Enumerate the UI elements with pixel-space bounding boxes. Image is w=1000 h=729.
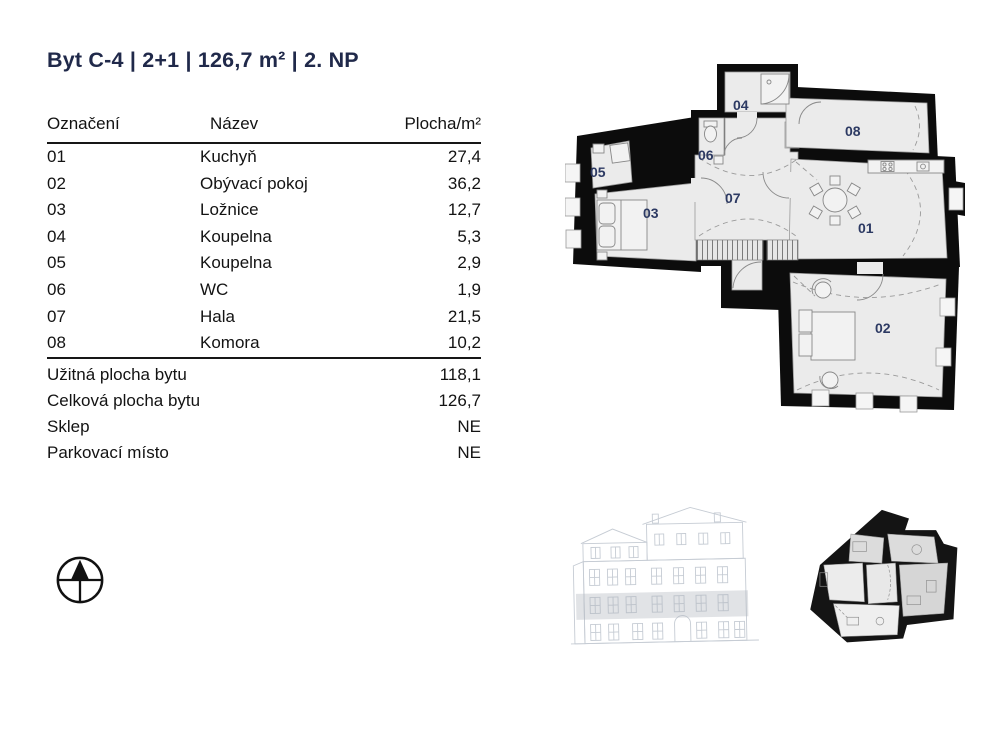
room-code: 01 (47, 143, 200, 171)
summary-row: Sklep NE (47, 414, 481, 440)
shower (610, 143, 630, 163)
room-name: Koupelna (200, 224, 350, 251)
summary-value: 126,7 (350, 388, 481, 414)
room-code: 05 (47, 250, 200, 277)
floor-overview-miniplan (788, 505, 968, 655)
table-row: 08 Komora 10,2 (47, 330, 481, 358)
building-elevation-drawing (556, 502, 771, 667)
table-row: 05 Koupelna 2,9 (47, 250, 481, 277)
room-code: 06 (47, 277, 200, 304)
room-code: 02 (47, 171, 200, 198)
room-code: 04 (47, 224, 200, 251)
room-name: Hala (200, 304, 350, 331)
summary-row: Parkovací místo NE (47, 440, 481, 466)
armchair (815, 282, 831, 298)
room-label-01: 01 (858, 220, 874, 236)
room-area: 21,5 (350, 304, 481, 331)
room-area: 36,2 (350, 171, 481, 198)
room-label-03: 03 (643, 205, 659, 221)
highlighted-floor-band (576, 590, 749, 620)
kitchen-counter (868, 160, 944, 173)
room-area: 12,7 (350, 197, 481, 224)
room-label-05: 05 (590, 164, 606, 180)
room-area: 5,3 (350, 224, 481, 251)
summary-label: Sklep (47, 414, 350, 440)
apartment-floorplan: 01 02 03 04 05 06 07 08 (565, 60, 965, 432)
room-name: Kuchyň (200, 143, 350, 171)
table-row: 06 WC 1,9 (47, 277, 481, 304)
column-header-designation: Označení (47, 114, 200, 143)
room-label-06: 06 (698, 147, 714, 163)
summary-value: 118,1 (350, 358, 481, 388)
table-row: 07 Hala 21,5 (47, 304, 481, 331)
dining-table (823, 188, 847, 212)
room-name: Ložnice (200, 197, 350, 224)
summary-value: NE (350, 414, 481, 440)
table-header-row: Označení Název Plocha/m² (47, 114, 481, 143)
room-label-02: 02 (875, 320, 891, 336)
summary-label: Užitná plocha bytu (47, 358, 350, 388)
room-name: Koupelna (200, 250, 350, 277)
page-title: Byt C-4 | 2+1 | 126,7 m² | 2. NP (47, 48, 359, 73)
room-area: 2,9 (350, 250, 481, 277)
room-label-08: 08 (845, 123, 861, 139)
column-header-area: Plocha/m² (350, 114, 481, 143)
toilet (705, 126, 717, 142)
table-row: 04 Koupelna 5,3 (47, 224, 481, 251)
summary-row: Užitná plocha bytu 118,1 (47, 358, 481, 388)
room-code: 08 (47, 330, 200, 358)
summary-value: NE (350, 440, 481, 466)
table-row: 02 Obývací pokoj 36,2 (47, 171, 481, 198)
table-row: 03 Ložnice 12,7 (47, 197, 481, 224)
room-area: 1,9 (350, 277, 481, 304)
room-area: 27,4 (350, 143, 481, 171)
room-area-table: Označení Název Plocha/m² 01 Kuchyň 27,4 … (47, 114, 481, 467)
summary-row: Celková plocha bytu 126,7 (47, 388, 481, 414)
room-code: 03 (47, 197, 200, 224)
room-code: 07 (47, 304, 200, 331)
room-name: Komora (200, 330, 350, 358)
room-name: WC (200, 277, 350, 304)
floorplan-sheet: Byt C-4 | 2+1 | 126,7 m² | 2. NP Označen… (0, 0, 1000, 729)
room-area: 10,2 (350, 330, 481, 358)
washbasin (714, 156, 723, 164)
summary-label: Celková plocha bytu (47, 388, 350, 414)
staircase (697, 240, 798, 260)
room-label-07: 07 (725, 190, 741, 206)
sofa-table (811, 312, 855, 360)
room-name: Obývací pokoj (200, 171, 350, 198)
summary-label: Parkovací místo (47, 440, 350, 466)
armchair (822, 372, 838, 388)
table-row: 01 Kuchyň 27,4 (47, 143, 481, 171)
column-header-name: Název (200, 114, 350, 143)
compass-north-icon (54, 554, 106, 606)
washbasin (593, 144, 604, 153)
room-label-04: 04 (733, 97, 749, 113)
